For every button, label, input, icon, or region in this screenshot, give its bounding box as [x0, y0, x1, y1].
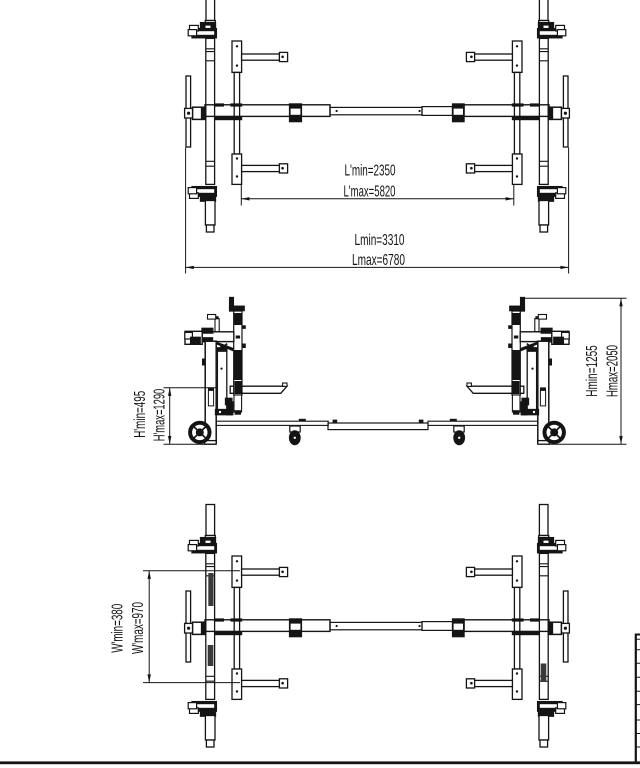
svg-text:L'max=5820: L'max=5820 [344, 184, 396, 201]
svg-text:Hmax=2050: Hmax=2050 [605, 345, 622, 397]
svg-text:W'max=970: W'max=970 [130, 602, 147, 654]
svg-text:L'min=2350: L'min=2350 [345, 163, 396, 180]
svg-text:W'min=380: W'min=380 [110, 604, 127, 653]
svg-text:Lmax=6780: Lmax=6780 [352, 252, 405, 269]
svg-text:H'min=495: H'min=495 [132, 391, 149, 438]
svg-text:H'max=1290: H'max=1290 [152, 389, 169, 442]
svg-text:Hmin=1255: Hmin=1255 [584, 345, 601, 397]
svg-text:Lmin=3310: Lmin=3310 [355, 232, 405, 249]
